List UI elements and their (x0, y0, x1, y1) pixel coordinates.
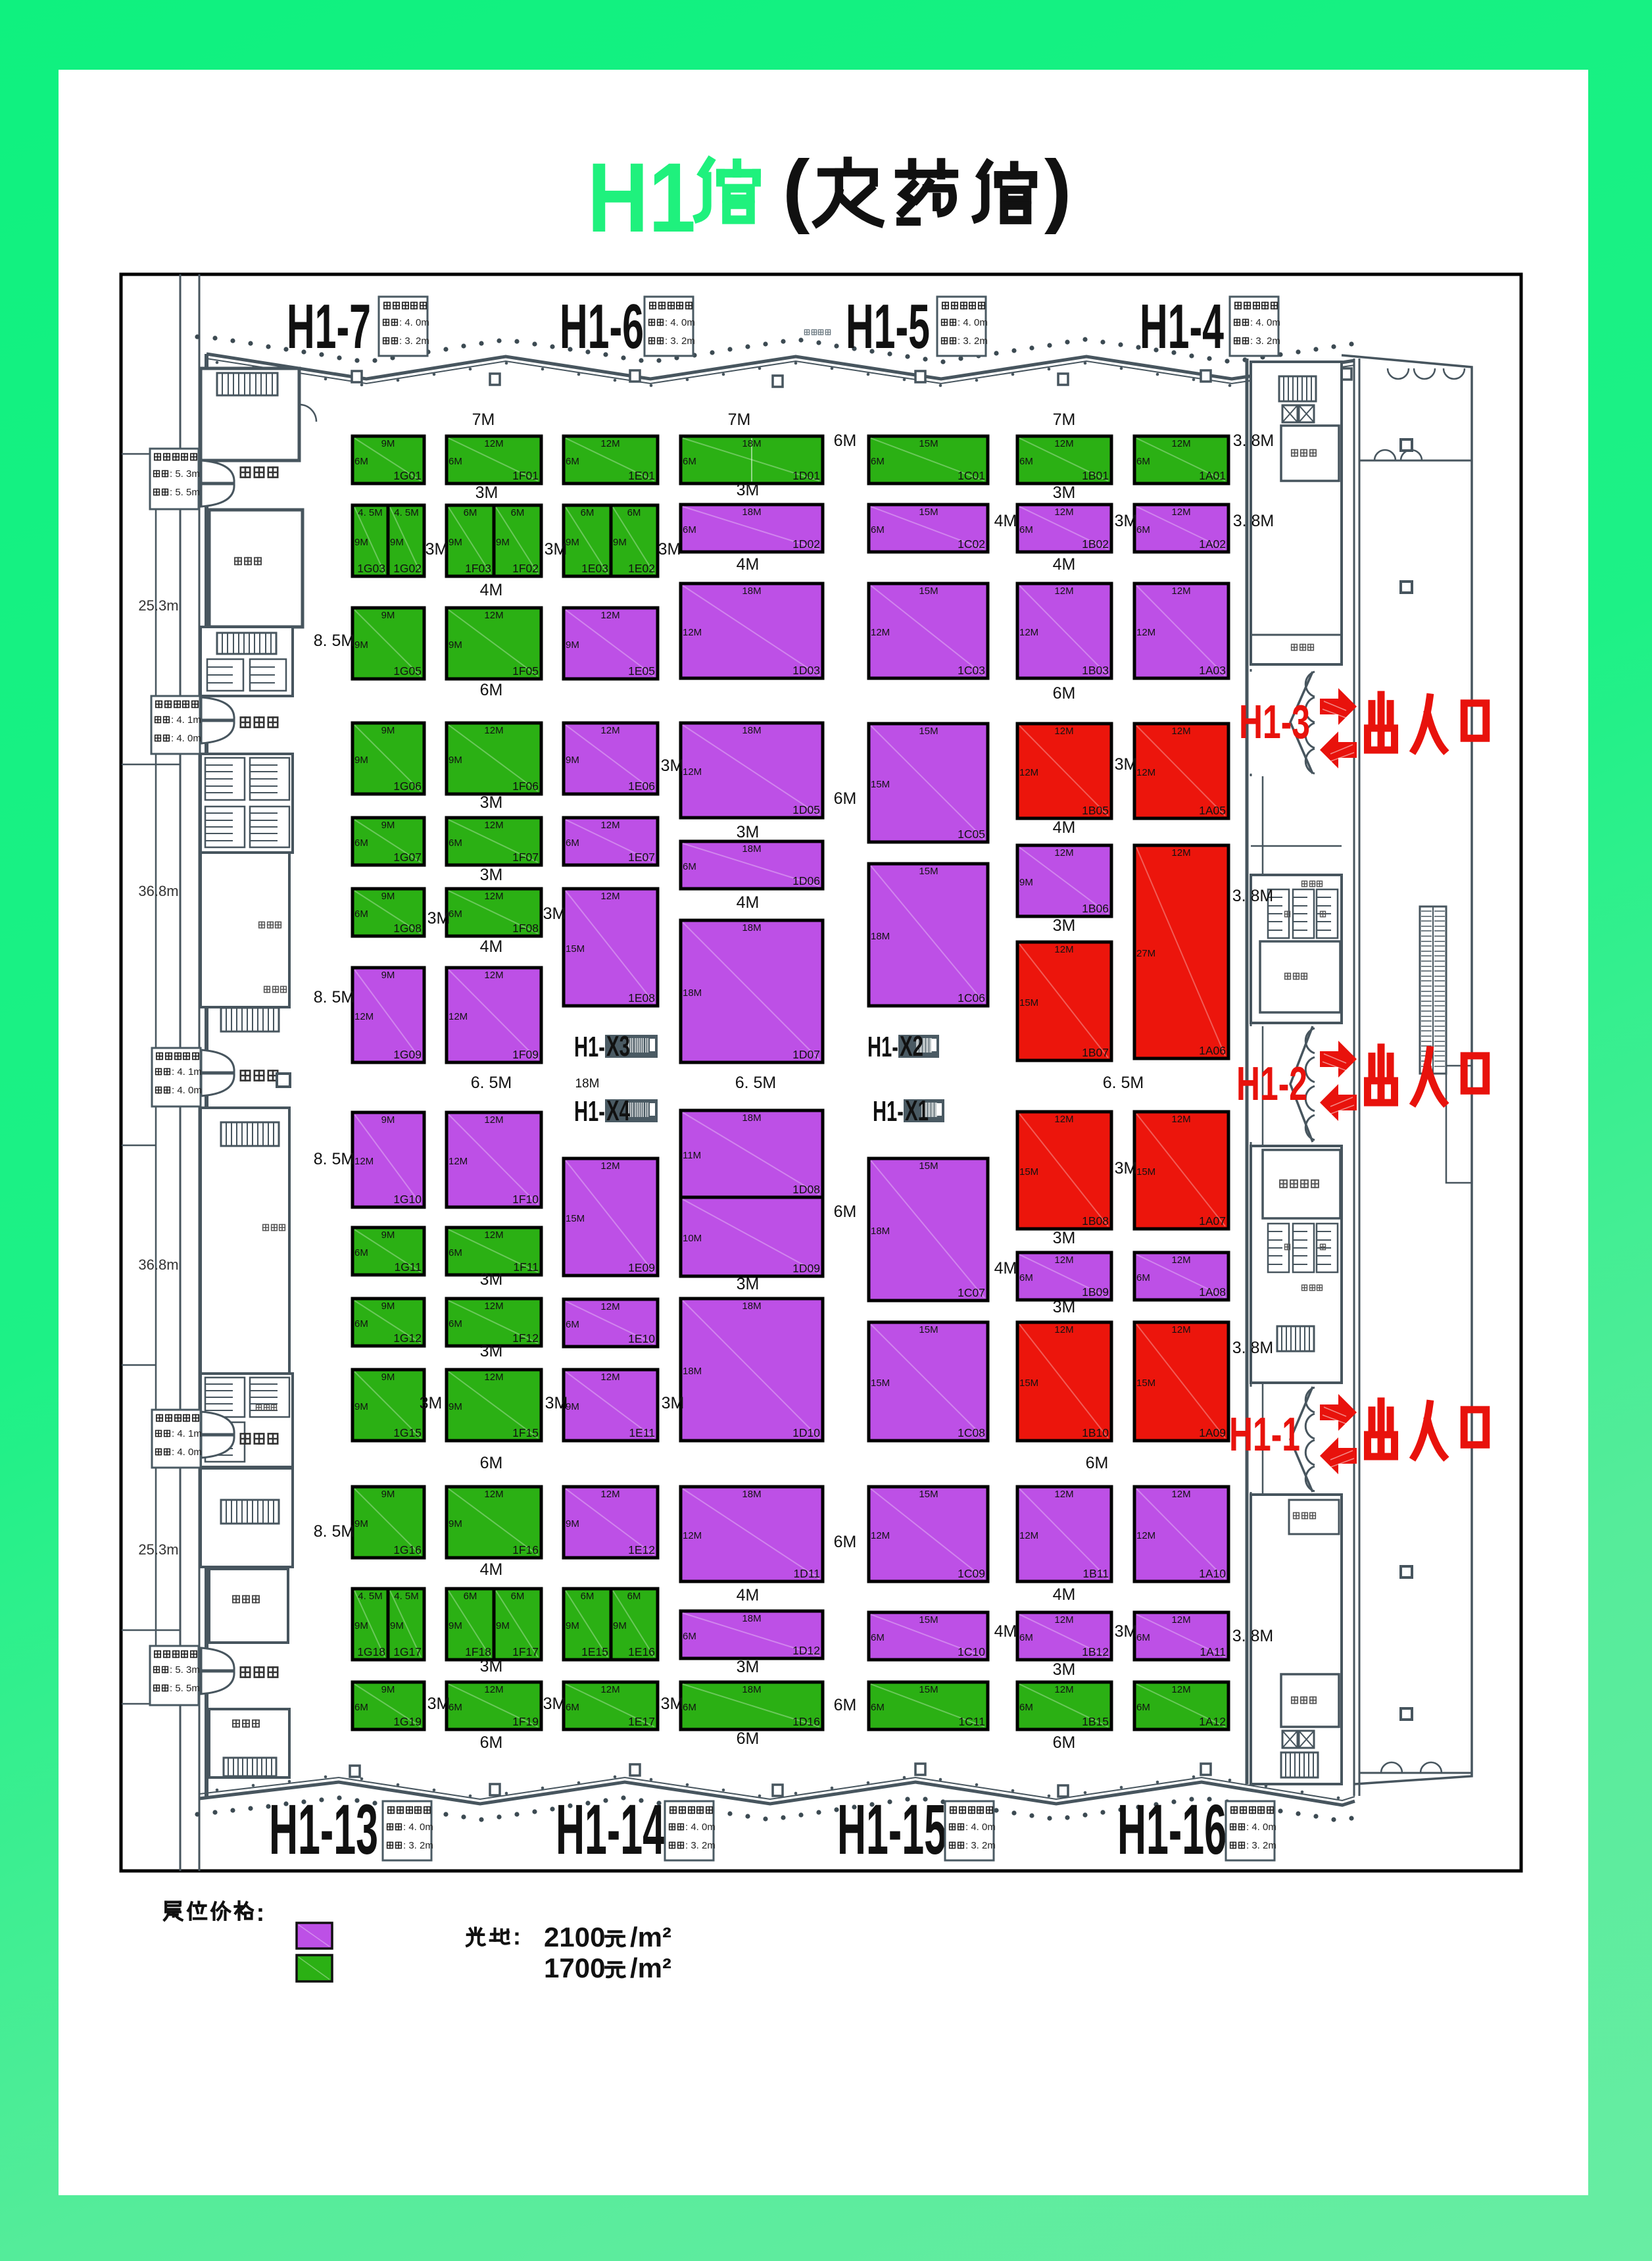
svg-text:1G08: 1G08 (393, 922, 422, 935)
svg-text:6M: 6M (449, 1702, 462, 1713)
svg-text:: 5. 3m: : 5. 3m (170, 468, 200, 480)
svg-text:6M: 6M (464, 507, 477, 518)
svg-text:9M: 9M (449, 1620, 462, 1631)
svg-text:12M: 12M (1054, 438, 1073, 449)
svg-text:6M: 6M (1019, 1272, 1033, 1283)
svg-text:12M: 12M (1136, 1530, 1155, 1541)
svg-text:27M: 27M (1136, 948, 1155, 959)
svg-text:4M: 4M (480, 937, 503, 956)
svg-text:1G03: 1G03 (357, 562, 385, 575)
svg-text:3M: 3M (661, 757, 684, 775)
svg-text:12M: 12M (600, 1160, 619, 1172)
svg-text:1D07: 1D07 (792, 1048, 820, 1061)
svg-text:1A08: 1A08 (1199, 1285, 1226, 1299)
svg-text:12M: 12M (1054, 507, 1073, 518)
svg-text:): ) (1044, 144, 1071, 235)
svg-text:: 3. 2m: : 3. 2m (403, 1840, 433, 1851)
svg-text:: 5. 5m: : 5. 5m (170, 1683, 200, 1694)
svg-text:: 4. 0m: : 4. 0m (1250, 317, 1280, 328)
svg-text:12M: 12M (1171, 847, 1190, 858)
svg-text:6M: 6M (354, 1247, 368, 1258)
svg-text:3M: 3M (427, 909, 450, 928)
svg-text:15M: 15M (871, 779, 890, 790)
svg-text:6M: 6M (1136, 1702, 1150, 1713)
svg-text:12M: 12M (484, 725, 503, 736)
svg-text:1D06: 1D06 (792, 874, 820, 887)
svg-text:6M: 6M (871, 1702, 885, 1713)
svg-text::: : (256, 1899, 265, 1927)
svg-text:15M: 15M (919, 507, 938, 518)
svg-text:X1: X1 (905, 1095, 929, 1127)
svg-text:12M: 12M (484, 1372, 503, 1383)
svg-text:18M: 18M (575, 1077, 600, 1091)
svg-text:: 5. 5m: : 5. 5m (170, 487, 200, 498)
svg-text:6M: 6M (1019, 1702, 1033, 1713)
svg-text:9M: 9M (381, 1230, 395, 1241)
svg-text:H1-15: H1-15 (837, 1789, 946, 1869)
svg-text:6M: 6M (354, 837, 368, 849)
svg-text:1G17: 1G17 (393, 1645, 422, 1658)
svg-text:1B15: 1B15 (1082, 1715, 1109, 1728)
svg-text:18M: 18M (871, 931, 890, 942)
svg-text:12M: 12M (600, 820, 619, 831)
svg-text:1A02: 1A02 (1199, 537, 1226, 551)
svg-text:H1-5: H1-5 (846, 291, 930, 362)
svg-text:12M: 12M (1171, 585, 1190, 597)
svg-text:6M: 6M (1136, 456, 1150, 467)
svg-text:9M: 9M (613, 1620, 627, 1631)
svg-text:1B10: 1B10 (1082, 1426, 1109, 1439)
svg-text:15M: 15M (566, 943, 585, 955)
svg-text:H1-: H1- (867, 1031, 898, 1063)
svg-text:6M: 6M (480, 1733, 503, 1752)
svg-text:12M: 12M (484, 438, 503, 449)
svg-text:6M: 6M (871, 1632, 885, 1643)
svg-text:1D12: 1D12 (792, 1644, 820, 1657)
svg-text:4. 5M: 4. 5M (394, 1591, 419, 1602)
svg-text:12M: 12M (1054, 944, 1073, 955)
svg-text:12M: 12M (1019, 1530, 1038, 1541)
svg-text:1F16: 1F16 (512, 1543, 539, 1556)
svg-text:15M: 15M (919, 726, 938, 737)
svg-text:9M: 9M (449, 1401, 462, 1412)
svg-text:3M: 3M (737, 1275, 760, 1293)
svg-text:6M: 6M (871, 524, 885, 535)
svg-text:6M: 6M (449, 1318, 462, 1329)
svg-text:6M: 6M (1136, 1632, 1150, 1643)
svg-text:18M: 18M (683, 987, 702, 999)
svg-text:: 3. 2m: : 3. 2m (965, 1840, 996, 1851)
svg-text:1E07: 1E07 (628, 851, 655, 864)
svg-text:H1-: H1- (574, 1095, 605, 1128)
svg-text:: 3. 2m: : 3. 2m (958, 335, 988, 347)
svg-text:9M: 9M (1019, 877, 1033, 888)
svg-text:H1-7: H1-7 (287, 291, 371, 362)
svg-text:12M: 12M (354, 1156, 374, 1167)
svg-text:1G18: 1G18 (357, 1645, 385, 1658)
svg-text:18M: 18M (742, 725, 761, 736)
svg-text:1E16: 1E16 (628, 1645, 655, 1658)
svg-text:: 4. 0m: : 4. 0m (172, 1447, 202, 1458)
svg-text:1E05: 1E05 (628, 664, 655, 678)
svg-text:12M: 12M (600, 1301, 619, 1312)
svg-text:3M: 3M (737, 481, 760, 499)
svg-text:H1-: H1- (873, 1095, 904, 1128)
svg-text:3M: 3M (480, 1270, 503, 1289)
svg-text:: 4. 0m: : 4. 0m (965, 1822, 996, 1833)
svg-text:1E10: 1E10 (628, 1332, 655, 1345)
svg-text:: 3. 2m: : 3. 2m (1246, 1840, 1276, 1851)
svg-text:1B08: 1B08 (1082, 1214, 1109, 1228)
svg-text:12M: 12M (1054, 1614, 1073, 1626)
svg-text:1E12: 1E12 (628, 1543, 655, 1556)
svg-text:1D16: 1D16 (792, 1715, 820, 1728)
svg-text:12M: 12M (683, 1530, 702, 1541)
svg-text:12M: 12M (600, 725, 619, 736)
svg-text:6M: 6M (449, 1247, 462, 1258)
svg-text:1B05: 1B05 (1082, 804, 1109, 817)
svg-text:1E02: 1E02 (628, 562, 655, 575)
svg-text:1B11: 1B11 (1082, 1567, 1109, 1580)
svg-text:12M: 12M (484, 1230, 503, 1241)
svg-text:9M: 9M (381, 970, 395, 981)
svg-text:6M: 6M (1019, 456, 1033, 467)
svg-text:1E03: 1E03 (581, 562, 608, 575)
svg-text:3M: 3M (737, 1658, 760, 1676)
svg-text:12M: 12M (484, 1301, 503, 1312)
svg-text:1F09: 1F09 (512, 1048, 539, 1061)
svg-text:3M: 3M (480, 1657, 503, 1676)
svg-text:1A07: 1A07 (1199, 1214, 1226, 1228)
svg-text:18M: 18M (742, 1613, 761, 1624)
svg-text:H1-2: H1-2 (1236, 1058, 1307, 1110)
svg-text:1A03: 1A03 (1199, 664, 1226, 677)
svg-text:6M: 6M (511, 507, 525, 518)
svg-text:6M: 6M (449, 908, 462, 920)
svg-text:18M: 18M (742, 922, 761, 933)
svg-text:3M: 3M (1115, 512, 1138, 530)
svg-text:12M: 12M (1054, 847, 1073, 858)
svg-text:6. 5M: 6. 5M (1103, 1074, 1144, 1092)
svg-text:11M: 11M (683, 1150, 701, 1161)
svg-text:1G11: 1G11 (394, 1260, 422, 1274)
svg-text:6M: 6M (683, 524, 696, 535)
svg-text:9M: 9M (381, 891, 395, 902)
svg-text:18M: 18M (871, 1226, 890, 1237)
svg-text:9M: 9M (390, 1620, 404, 1631)
svg-text:: 4. 0m: : 4. 0m (685, 1822, 716, 1833)
svg-text:1E06: 1E06 (628, 780, 655, 793)
svg-text:3M: 3M (480, 866, 503, 884)
svg-text:9M: 9M (449, 639, 462, 651)
svg-text:3M: 3M (545, 1394, 568, 1412)
svg-text:1D11: 1D11 (793, 1567, 820, 1580)
svg-text:6. 5M: 6. 5M (471, 1074, 512, 1092)
svg-text:18M: 18M (742, 585, 761, 597)
svg-text:12M: 12M (1054, 1684, 1073, 1695)
svg-text:4. 5M: 4. 5M (394, 507, 419, 518)
svg-text:4M: 4M (994, 1259, 1017, 1278)
svg-text:6M: 6M (581, 1591, 595, 1602)
svg-text:3. 8M: 3. 8M (1233, 432, 1275, 450)
svg-text:: 4. 1m: : 4. 1m (172, 1066, 202, 1078)
svg-text:12M: 12M (600, 891, 619, 902)
svg-text:7M: 7M (728, 410, 751, 429)
svg-text:12M: 12M (1136, 767, 1155, 778)
svg-text:18M: 18M (742, 1489, 761, 1500)
svg-text:9M: 9M (354, 1401, 368, 1412)
svg-text:9M: 9M (566, 755, 579, 766)
svg-text:1D03: 1D03 (792, 664, 820, 677)
svg-text:1C03: 1C03 (958, 664, 985, 677)
svg-text:12M: 12M (600, 610, 619, 621)
svg-text:6M: 6M (627, 1591, 641, 1602)
svg-text:6M: 6M (834, 789, 857, 808)
svg-text:1B09: 1B09 (1082, 1285, 1109, 1299)
svg-text:1E11: 1E11 (629, 1426, 655, 1439)
svg-text:6M: 6M (1019, 524, 1033, 535)
svg-text:9M: 9M (354, 755, 368, 766)
svg-text:12M: 12M (600, 1684, 619, 1695)
svg-text:6M: 6M (1053, 1733, 1076, 1752)
svg-text:4M: 4M (1053, 555, 1076, 574)
svg-text:6M: 6M (683, 861, 696, 872)
svg-text:12M: 12M (449, 1156, 468, 1167)
svg-text:12M: 12M (484, 891, 503, 902)
svg-text:H1: H1 (587, 142, 696, 253)
svg-text:9M: 9M (381, 1301, 395, 1312)
svg-text:6M: 6M (871, 456, 885, 467)
svg-text:1G15: 1G15 (393, 1426, 422, 1439)
svg-text:1B02: 1B02 (1082, 537, 1109, 551)
svg-text:1C05: 1C05 (958, 828, 985, 841)
svg-text:3M: 3M (427, 1695, 450, 1713)
svg-text:1G02: 1G02 (393, 562, 422, 575)
svg-text:1B01: 1B01 (1082, 469, 1109, 482)
svg-text:2100: 2100 (544, 1922, 605, 1952)
svg-text:12M: 12M (484, 1114, 503, 1126)
svg-text:1D01: 1D01 (792, 469, 820, 482)
svg-text:1F06: 1F06 (512, 780, 539, 793)
svg-text:12M: 12M (354, 1011, 374, 1022)
svg-text:18M: 18M (683, 1366, 702, 1377)
svg-text:H1-6: H1-6 (560, 291, 644, 362)
svg-text:3M: 3M (1053, 916, 1076, 935)
svg-text:3M: 3M (658, 540, 681, 559)
svg-text:1D10: 1D10 (792, 1426, 820, 1439)
svg-text:1A09: 1A09 (1199, 1426, 1226, 1439)
svg-text:12M: 12M (1171, 1614, 1190, 1626)
svg-text:1G07: 1G07 (393, 851, 422, 864)
svg-text:6M: 6M (354, 908, 368, 920)
svg-text:12M: 12M (871, 1530, 890, 1541)
svg-text:9M: 9M (566, 639, 579, 651)
svg-text:1E15: 1E15 (581, 1645, 608, 1658)
svg-text:: 4. 0m: : 4. 0m (403, 1822, 433, 1833)
svg-text:15M: 15M (919, 585, 938, 597)
svg-text:12M: 12M (683, 766, 702, 778)
svg-text:(: ( (783, 144, 810, 235)
svg-text:15M: 15M (919, 1489, 938, 1500)
svg-text:1E08: 1E08 (628, 991, 655, 1005)
svg-text:12M: 12M (449, 1011, 468, 1022)
svg-text:9M: 9M (381, 1684, 395, 1695)
svg-text:6M: 6M (1136, 1272, 1150, 1283)
svg-text:9M: 9M (496, 537, 510, 548)
svg-text:9M: 9M (566, 1518, 579, 1529)
svg-text:9M: 9M (354, 1620, 368, 1631)
svg-text:: 3. 2m: : 3. 2m (1250, 335, 1280, 347)
svg-text:1F01: 1F01 (512, 469, 539, 482)
svg-text:12M: 12M (1054, 1324, 1073, 1335)
svg-text:1B03: 1B03 (1082, 664, 1109, 677)
svg-text:6M: 6M (581, 507, 595, 518)
svg-text:18M: 18M (742, 1684, 761, 1695)
svg-text:1B07: 1B07 (1082, 1046, 1109, 1059)
svg-text:3M: 3M (543, 1695, 566, 1713)
svg-text:18M: 18M (742, 1301, 761, 1312)
svg-text:6M: 6M (480, 1454, 503, 1472)
svg-text:6M: 6M (683, 1702, 696, 1713)
svg-text:1D09: 1D09 (792, 1262, 820, 1275)
svg-text:H1-4: H1-4 (1140, 291, 1224, 362)
svg-text:7M: 7M (472, 410, 495, 429)
svg-text:3M: 3M (1053, 1298, 1076, 1316)
svg-text:1A10: 1A10 (1199, 1567, 1226, 1580)
svg-text:12M: 12M (600, 1372, 619, 1383)
svg-text:3M: 3M (737, 823, 760, 841)
svg-text:6M: 6M (683, 1631, 696, 1642)
svg-text:12M: 12M (1171, 1255, 1190, 1266)
svg-text:3M: 3M (545, 540, 568, 559)
svg-text:9M: 9M (390, 537, 404, 548)
svg-text:15M: 15M (1136, 1166, 1155, 1178)
svg-text:3M: 3M (661, 1695, 684, 1713)
svg-text:1G05: 1G05 (393, 664, 422, 678)
svg-text:8. 5M: 8. 5M (314, 1150, 355, 1168)
svg-text:12M: 12M (871, 627, 890, 638)
svg-text:1700: 1700 (544, 1952, 605, 1983)
svg-text:6M: 6M (1053, 684, 1076, 703)
svg-text:18M: 18M (742, 1112, 761, 1124)
svg-text:36.8m: 36.8m (138, 1256, 178, 1273)
svg-text:9M: 9M (381, 1489, 395, 1500)
svg-text:3M: 3M (1115, 755, 1138, 774)
svg-text:1A01: 1A01 (1199, 469, 1226, 482)
svg-text:6M: 6M (1019, 1632, 1033, 1643)
svg-text:3M: 3M (1053, 1660, 1076, 1679)
svg-text:1A06: 1A06 (1199, 1044, 1226, 1057)
svg-text:3M: 3M (1115, 1622, 1138, 1641)
svg-text:1G12: 1G12 (393, 1331, 422, 1345)
svg-text:4M: 4M (737, 893, 760, 912)
svg-text:12M: 12M (1171, 1489, 1190, 1500)
svg-text:12M: 12M (484, 820, 503, 831)
svg-text:1C06: 1C06 (958, 991, 985, 1005)
svg-text:9M: 9M (381, 438, 395, 449)
svg-text:3M: 3M (480, 1342, 503, 1360)
svg-text:3. 8M: 3. 8M (1232, 887, 1274, 905)
svg-text:/m²: /m² (630, 1922, 671, 1952)
svg-text:9M: 9M (449, 1518, 462, 1529)
svg-text:1F18: 1F18 (465, 1645, 491, 1658)
svg-text:3. 8M: 3. 8M (1233, 512, 1275, 530)
svg-text:: 5. 3m: : 5. 3m (170, 1664, 200, 1676)
svg-text:9M: 9M (449, 537, 462, 548)
svg-text:8. 5M: 8. 5M (314, 988, 355, 1006)
svg-text:1F12: 1F12 (512, 1331, 539, 1345)
svg-text:1F02: 1F02 (512, 562, 539, 575)
svg-text:6M: 6M (566, 456, 579, 467)
svg-text:6M: 6M (449, 837, 462, 849)
svg-text:15M: 15M (1019, 1166, 1038, 1178)
svg-text:9M: 9M (354, 537, 368, 548)
svg-text:9M: 9M (354, 1518, 368, 1529)
svg-text:: 3. 2m: : 3. 2m (665, 335, 695, 347)
svg-text:15M: 15M (919, 866, 938, 877)
svg-text:6M: 6M (480, 681, 503, 699)
svg-text:9M: 9M (354, 639, 368, 651)
svg-text:1B12: 1B12 (1082, 1645, 1109, 1658)
svg-text:: 4. 1m: : 4. 1m (172, 1428, 202, 1439)
svg-text:1A11: 1A11 (1200, 1645, 1226, 1658)
svg-text:X4: X4 (606, 1095, 630, 1127)
svg-text:1F11: 1F11 (513, 1260, 539, 1274)
svg-text:: 4. 0m: : 4. 0m (1246, 1822, 1276, 1833)
svg-text:6M: 6M (683, 456, 696, 467)
svg-text:4M: 4M (994, 1622, 1017, 1641)
svg-text:1F17: 1F17 (512, 1645, 539, 1658)
svg-text:1C02: 1C02 (958, 537, 985, 551)
svg-text:15M: 15M (919, 1684, 938, 1695)
svg-text:6M: 6M (354, 1702, 368, 1713)
svg-text:6M: 6M (1086, 1454, 1109, 1472)
svg-text:X2: X2 (900, 1030, 923, 1062)
svg-text:3M: 3M (662, 1394, 685, 1412)
svg-text:H1-16: H1-16 (1117, 1789, 1227, 1869)
svg-text:1G06: 1G06 (393, 780, 422, 793)
svg-text:6M: 6M (566, 1319, 579, 1330)
svg-text:1D05: 1D05 (792, 803, 820, 816)
svg-text:: 4. 1m: : 4. 1m (171, 714, 201, 726)
svg-text:H1-1: H1-1 (1229, 1408, 1300, 1461)
svg-text:6M: 6M (834, 1533, 857, 1551)
svg-text:7M: 7M (1053, 410, 1076, 429)
svg-text:H1-3: H1-3 (1239, 696, 1310, 749)
svg-text:9M: 9M (381, 725, 395, 736)
svg-text:: 3. 2m: : 3. 2m (685, 1840, 716, 1851)
svg-text:1C09: 1C09 (958, 1567, 985, 1580)
svg-text:4M: 4M (994, 512, 1017, 530)
svg-text:15M: 15M (919, 1160, 938, 1172)
svg-text:6M: 6M (449, 456, 462, 467)
svg-text:12M: 12M (484, 970, 503, 981)
svg-text:1E09: 1E09 (628, 1261, 655, 1274)
svg-text:: 4. 0m: : 4. 0m (958, 317, 988, 328)
svg-text:9M: 9M (381, 1114, 395, 1126)
svg-text:6. 5M: 6. 5M (735, 1074, 777, 1092)
svg-text:4. 5M: 4. 5M (358, 1591, 383, 1602)
svg-text:1F15: 1F15 (512, 1426, 539, 1439)
svg-text:: 4. 0m: : 4. 0m (399, 317, 429, 328)
svg-text:15M: 15M (566, 1213, 585, 1224)
svg-text:12M: 12M (1054, 1255, 1073, 1266)
svg-text:1D02: 1D02 (792, 537, 820, 551)
svg-text:1A05: 1A05 (1199, 804, 1226, 817)
svg-text:3. 8M: 3. 8M (1232, 1627, 1274, 1645)
svg-text:/m²: /m² (630, 1952, 671, 1983)
svg-text:12M: 12M (484, 1684, 503, 1695)
